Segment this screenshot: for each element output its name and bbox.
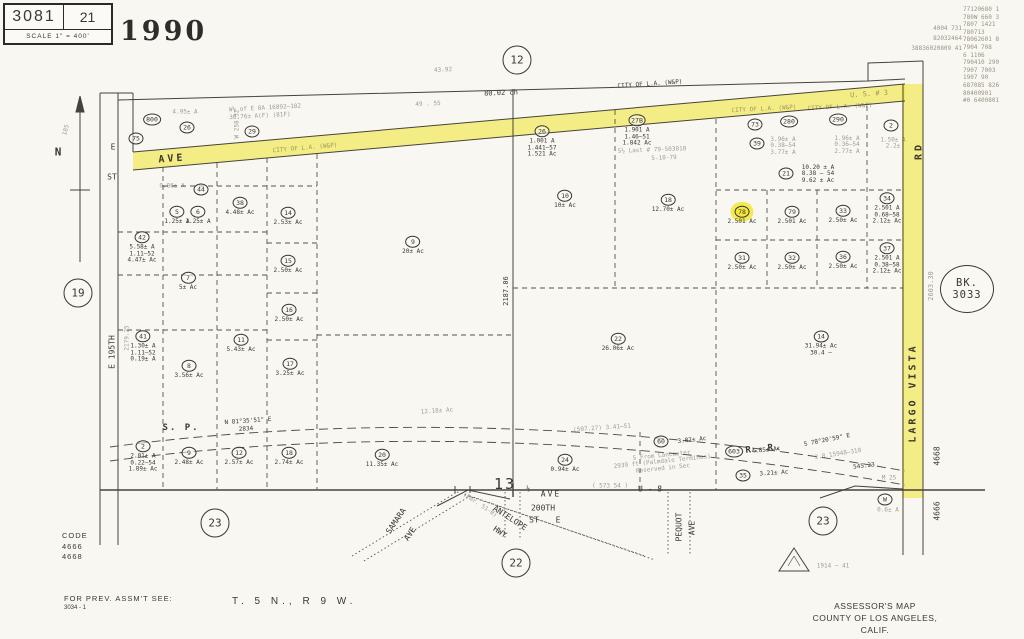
map-label-text: 1.96± A 0.36—54 2.77± A: [834, 135, 859, 155]
map-label: 4668: [933, 446, 942, 465]
map-label: ( 573 54 ): [592, 483, 628, 490]
map-label-text: AVE: [688, 521, 697, 535]
parcel-number: 290: [829, 114, 847, 126]
parcel-acreage: 2.50± Ac: [829, 218, 858, 225]
parcel: 24 0.94± Ac: [551, 447, 580, 474]
parcel: 21: [779, 161, 794, 180]
page-number: 21: [64, 5, 111, 29]
parcel: 18 12.70± Ac: [652, 187, 685, 214]
township-range-label: T. 5 N., R 9 W.: [232, 596, 356, 607]
parcel-number: 34: [880, 192, 895, 204]
parcel-number: 18: [282, 447, 297, 459]
parcel-acreage: 2.501 A 0.68—58 2.12± Ac: [873, 205, 902, 225]
map-label-text: 0.86± A: [159, 183, 184, 190]
map-label: 2179.25: [124, 325, 131, 350]
map-label: W 258.32: [234, 110, 241, 139]
map-label: M 25: [882, 475, 896, 482]
parcel-number: 33: [836, 205, 851, 217]
parcel-number: 603: [725, 446, 743, 458]
parcel-acreage: 1.901 A 1.46—51 1.842 Ac: [623, 127, 652, 147]
map-label: E: [111, 143, 116, 152]
map-label: 2603.30: [927, 271, 935, 301]
parcel: 8 3.56± Ac: [175, 353, 204, 380]
map-label: 200TH: [531, 504, 555, 513]
parcel: 10 10± Ac: [554, 183, 576, 210]
parcel: 33 2.50± Ac: [829, 198, 858, 225]
map-label-text: PEQUOT: [675, 513, 684, 542]
parcel: 2 2.01± A 0.22—54 1.89± Ac: [129, 433, 158, 473]
parcel-number: 12: [232, 447, 247, 459]
parcel-number: 11: [234, 334, 249, 346]
parcel-number: 2: [136, 440, 151, 452]
parcel-acreage: 2.57± Ac: [225, 460, 254, 467]
parcel: 32 2.50± Ac: [778, 245, 807, 272]
parcel-number: 7: [181, 272, 196, 284]
parcel-number: 26: [535, 125, 550, 137]
parcel-number: 75: [129, 133, 144, 145]
parcel-number: 5: [169, 206, 184, 218]
parcel-number: 280: [780, 116, 798, 128]
parcel: 31 2.50± Ac: [728, 245, 757, 272]
map-label-text: ( 573 54 ): [592, 483, 628, 490]
code-title: CODE: [62, 531, 88, 542]
assessor-map-line1: ASSESSOR'S MAP: [801, 600, 950, 612]
parcel-acreage: 3.56± Ac: [175, 373, 204, 380]
year-stamp: 1990: [120, 16, 207, 47]
book-number: 3081: [5, 5, 64, 29]
map-label-text: N: [55, 146, 62, 159]
map-label-text: 2187.06: [502, 276, 510, 306]
parcel-number: 36: [836, 251, 851, 263]
map-label: LARGO VISTA: [908, 343, 919, 442]
parcel: 17 3.25± Ac: [276, 351, 305, 378]
revision-notes-right: 77120680 1 780W 660 3 7807 1421 780713 7…: [963, 6, 1023, 105]
parcel-number: 8: [182, 360, 197, 372]
parcel: 75: [129, 126, 144, 145]
parcel: 36 2.50± Ac: [829, 244, 858, 271]
parcel: W: [878, 487, 893, 506]
parcel-acreage: 2.53± Ac: [274, 220, 303, 227]
map-label: 0.86± A: [159, 183, 184, 190]
book-page-row: 3081 21: [5, 5, 111, 30]
scale-label: SCALE 1" = 400': [5, 30, 111, 43]
map-label-text: ½: [526, 486, 530, 493]
parcel-number: 800: [143, 114, 161, 126]
parcel-acreage: 5± Ac: [179, 285, 197, 292]
parcel-number: 73: [748, 119, 763, 131]
parcel: 39: [750, 131, 765, 150]
parcel-number: W: [878, 494, 893, 506]
parcel-number: 39: [750, 138, 765, 150]
map-label-text: 5-10-79: [651, 154, 677, 162]
map-label: U - 8: [638, 485, 662, 494]
parcel-number: 17: [283, 358, 298, 370]
parcel: 42 5.58± A 1.11—52 4.47± Ac: [128, 224, 157, 264]
map-label-text: 0.6± A: [877, 507, 899, 514]
map-label-text: ST: [529, 516, 539, 525]
map-label: 5-10-79: [651, 154, 677, 162]
parcel-acreage: 0.94± Ac: [551, 467, 580, 474]
map-label: ½: [526, 486, 530, 493]
parcel: 800: [143, 107, 161, 126]
parcel: 6 1.25± A: [185, 199, 210, 226]
map-label-text: 4666: [933, 501, 942, 520]
map-label-text: 2603.30: [927, 271, 935, 301]
section-number-circle: 23: [201, 509, 230, 538]
parcel-number: 24: [558, 454, 573, 466]
map-label: 2834: [239, 425, 254, 433]
map-label-text: 4668: [933, 446, 942, 465]
parcel: 14 31.94± Ac 30.4 —: [805, 324, 838, 357]
parcel-number: 6: [190, 206, 205, 218]
north-arrow: [70, 96, 90, 262]
parcel-number: 31: [735, 252, 750, 264]
parcel-number: 35: [736, 470, 751, 482]
parcel-acreage: 2.48± Ac: [175, 460, 204, 467]
book-stamp-number: 3033: [952, 289, 981, 301]
map-label-text: M 25: [882, 475, 896, 482]
parcel-acreage: 2.501 Ac: [778, 219, 807, 226]
parcel: 9 20± Ac: [402, 229, 424, 256]
parcel-number: 9: [406, 236, 421, 248]
parcel: 26 1.001 A 1.441—57 1.521 Ac: [528, 118, 557, 158]
prev-assessment-number: 3034 - 1: [64, 605, 173, 611]
parcel-number: 44: [194, 184, 209, 196]
parcel: 2: [884, 113, 899, 132]
map-label: 1.96± A 0.36—54 2.77± A: [834, 129, 859, 155]
parcel-acreage: 12.70± Ac: [652, 207, 685, 214]
parcel-acreage: 2.501 A 0.38—58 2.12± Ac: [873, 255, 902, 275]
map-label: 1914 — 41: [817, 563, 850, 570]
section-number-label: 12: [510, 54, 523, 67]
survey-triangle-icon: [779, 548, 809, 571]
parcel-number: 79: [785, 206, 800, 218]
parcel: 603: [725, 439, 743, 458]
map-label-text: E: [111, 143, 116, 152]
map-label: 10.20 ± A 8.38 — 54 9.62 ± Ac: [802, 158, 835, 184]
map-label: ST: [107, 173, 117, 182]
map-label: 1.50± A 2.2±: [880, 130, 905, 150]
section-number-circle: 12: [503, 46, 532, 75]
revision-notes-left: 4004 731 82032464 38836020809 41: [874, 24, 962, 54]
map-label: 13: [494, 475, 516, 493]
parcel-acreage: 3.25± Ac: [276, 371, 305, 378]
assessor-map-line2: COUNTY OF LOS ANGELES, CALIF.: [801, 612, 950, 636]
section-number-label: 19: [71, 287, 84, 300]
parcel-number: 20: [374, 449, 389, 461]
parcel-acreage: 26.06± Ac: [602, 346, 635, 353]
parcel-acreage: 2.50± Ac: [275, 317, 304, 324]
parcel-number: 9: [182, 447, 197, 459]
section-number-circle: 19: [64, 279, 93, 308]
parcel-acreage: 20± Ac: [402, 249, 424, 256]
parcel: 16 2.50± Ac: [275, 297, 304, 324]
map-label-text: 10.20 ± A 8.38 — 54 9.62 ± Ac: [802, 164, 835, 184]
map-label: 3.96± A 0.38—54 3.77± A: [770, 130, 795, 156]
map-label-text: 80.02 ch: [484, 88, 518, 97]
parcel-acreage: 5.58± A 1.11—52 4.47± Ac: [128, 244, 157, 264]
map-label: 4666: [933, 501, 942, 520]
map-label: AVE: [158, 153, 186, 166]
parcel: 22 26.06± Ac: [602, 326, 635, 353]
section-number-label: 23: [208, 517, 221, 530]
map-label-text: 2179.25: [124, 325, 131, 350]
parcel: 41 1.30± A 1.11—52 0.19± A: [130, 323, 155, 363]
parcel-number: 42: [135, 231, 150, 243]
parcel: 20 11.35± Ac: [366, 442, 399, 469]
parcel: 7 5± Ac: [179, 265, 197, 292]
map-label: 4.95± A: [172, 109, 197, 116]
parcel-acreage: 2.501 Ac: [728, 219, 757, 226]
parcel-number: 27B: [628, 114, 646, 126]
map-label-text: 2834: [239, 425, 254, 433]
parcel-number: 78: [735, 206, 750, 218]
map-label-text: 49 . 55: [415, 100, 441, 108]
parcel-acreage: 10± Ac: [554, 203, 576, 210]
section-number-label: 23: [816, 515, 829, 528]
map-label-text: 13: [494, 475, 516, 493]
parcel-number: 22: [610, 333, 625, 345]
parcel-acreage: 2.50± Ac: [728, 265, 757, 272]
parcel-number: 37: [880, 242, 895, 254]
map-label: AVE: [541, 490, 561, 499]
prev-assessment-note: FOR PREV. ASSM'T SEE: 3034 - 1: [64, 594, 173, 611]
parcel-acreage: 2.74± Ac: [275, 460, 304, 467]
section-number-circle: 22: [502, 549, 531, 578]
map-label: 2187.06: [502, 276, 510, 306]
parcel-number: 29: [245, 126, 260, 138]
parcel: 73: [748, 112, 763, 131]
parcel-acreage: 2.50± Ac: [829, 264, 858, 271]
parcel-acreage: 1.001 A 1.441—57 1.521 Ac: [528, 138, 557, 158]
parcel: 12 2.57± Ac: [225, 440, 254, 467]
parcel-number: 15: [281, 255, 296, 267]
parcel-number: 26: [180, 122, 195, 134]
parcel-number: 14: [813, 331, 828, 343]
tax-code-block: CODE 4666 4668: [62, 531, 88, 563]
map-label-text: RD: [914, 142, 925, 160]
map-label-text: 4.95± A: [172, 109, 197, 116]
parcel: 11 5.43± Ac: [227, 327, 256, 354]
book-stamp-prefix: BK.: [956, 277, 978, 289]
parcel: 38 4.48± Ac: [226, 190, 255, 217]
map-label-text: AVE: [158, 153, 186, 166]
parcel-acreage: 1.30± A 1.11—52 0.19± A: [130, 343, 155, 363]
map-label: 80.02 ch: [484, 88, 518, 97]
map-label-text: 1.50± A 2.2±: [880, 136, 905, 150]
map-label: 43.92: [434, 66, 452, 74]
parcel-number: 38: [233, 197, 248, 209]
map-label-text: E 195TH: [108, 335, 117, 369]
map-label: PEQUOT: [675, 513, 684, 542]
map-label-text: 3.96± A 0.38—54 3.77± A: [770, 136, 795, 156]
map-label: AVE: [688, 521, 697, 535]
parcel: 29: [245, 119, 260, 138]
parcel-acreage: 2.50± Ac: [274, 268, 303, 275]
map-label-text: U - 8: [638, 485, 662, 494]
section-number-circle: 23: [809, 507, 838, 536]
code-numbers: 4666 4668: [62, 542, 88, 563]
parcel-acreage: 2.50± Ac: [778, 265, 807, 272]
parcel-acreage: 4.48± Ac: [226, 210, 255, 217]
map-label: E 195TH: [108, 335, 117, 369]
parcel: 78 2.501 Ac: [728, 199, 757, 226]
assessor-map-sheet: 3081 21 SCALE 1" = 400' 1990 4004 731 82…: [0, 0, 1024, 639]
parcel: 79 2.501 Ac: [778, 199, 807, 226]
book-stamp: BK. 3033: [940, 265, 994, 313]
map-label: 49 . 55: [415, 100, 441, 108]
map-label: N: [55, 146, 62, 159]
map-label-text: 43.92: [434, 66, 452, 74]
map-label-text: ST: [107, 173, 117, 182]
prev-assessment-label: FOR PREV. ASSM'T SEE:: [64, 594, 173, 603]
map-label-text: 1914 — 41: [817, 563, 850, 570]
parcel: 34 2.501 A 0.68—58 2.12± Ac: [873, 185, 902, 225]
map-label-text: 200TH: [531, 504, 555, 513]
map-label: RD: [914, 142, 925, 160]
parcel: 9 2.48± Ac: [175, 440, 204, 467]
map-label-text: S. P.: [162, 423, 199, 433]
parcel-number: 14: [281, 207, 296, 219]
parcel: 18 2.74± Ac: [275, 440, 304, 467]
map-label: 0.6± A: [877, 507, 899, 514]
parcel-number: 41: [135, 330, 150, 342]
parcel: 27B 1.901 A 1.46—51 1.842 Ac: [623, 107, 652, 147]
map-label-text: LARGO VISTA: [908, 343, 919, 442]
sheet-header-box: 3081 21 SCALE 1" = 400': [3, 3, 113, 45]
parcel-number: 21: [779, 168, 794, 180]
map-label: S. P.: [162, 423, 199, 433]
parcel-acreage: 1.25± A: [185, 219, 210, 226]
assessor-map-caption: ASSESSOR'S MAP COUNTY OF LOS ANGELES, CA…: [801, 600, 950, 636]
parcel: 26: [180, 115, 195, 134]
parcel-number: 18: [660, 194, 675, 206]
parcel-number: 10: [558, 190, 573, 202]
parcel: 44: [194, 177, 209, 196]
parcel-number: 32: [785, 252, 800, 264]
parcel: 35: [736, 463, 751, 482]
parcel: 37 2.501 A 0.38—58 2.12± Ac: [873, 235, 902, 275]
parcel: 14 2.53± Ac: [274, 200, 303, 227]
section-number-label: 22: [509, 557, 522, 570]
map-label: E: [556, 516, 561, 525]
parcel-number: 16: [282, 304, 297, 316]
parcel-acreage: 2.01± A 0.22—54 1.89± Ac: [129, 453, 158, 473]
parcel: 15 2.50± Ac: [274, 248, 303, 275]
parcel-acreage: 5.43± Ac: [227, 347, 256, 354]
map-label-text: W 258.32: [234, 110, 241, 139]
parcel-acreage: 31.94± Ac 30.4 —: [805, 344, 838, 357]
map-label: ST: [529, 516, 539, 525]
map-label-text: E: [556, 516, 561, 525]
map-label-text: AVE: [541, 490, 561, 499]
parcel-acreage: 11.35± Ac: [366, 462, 399, 469]
